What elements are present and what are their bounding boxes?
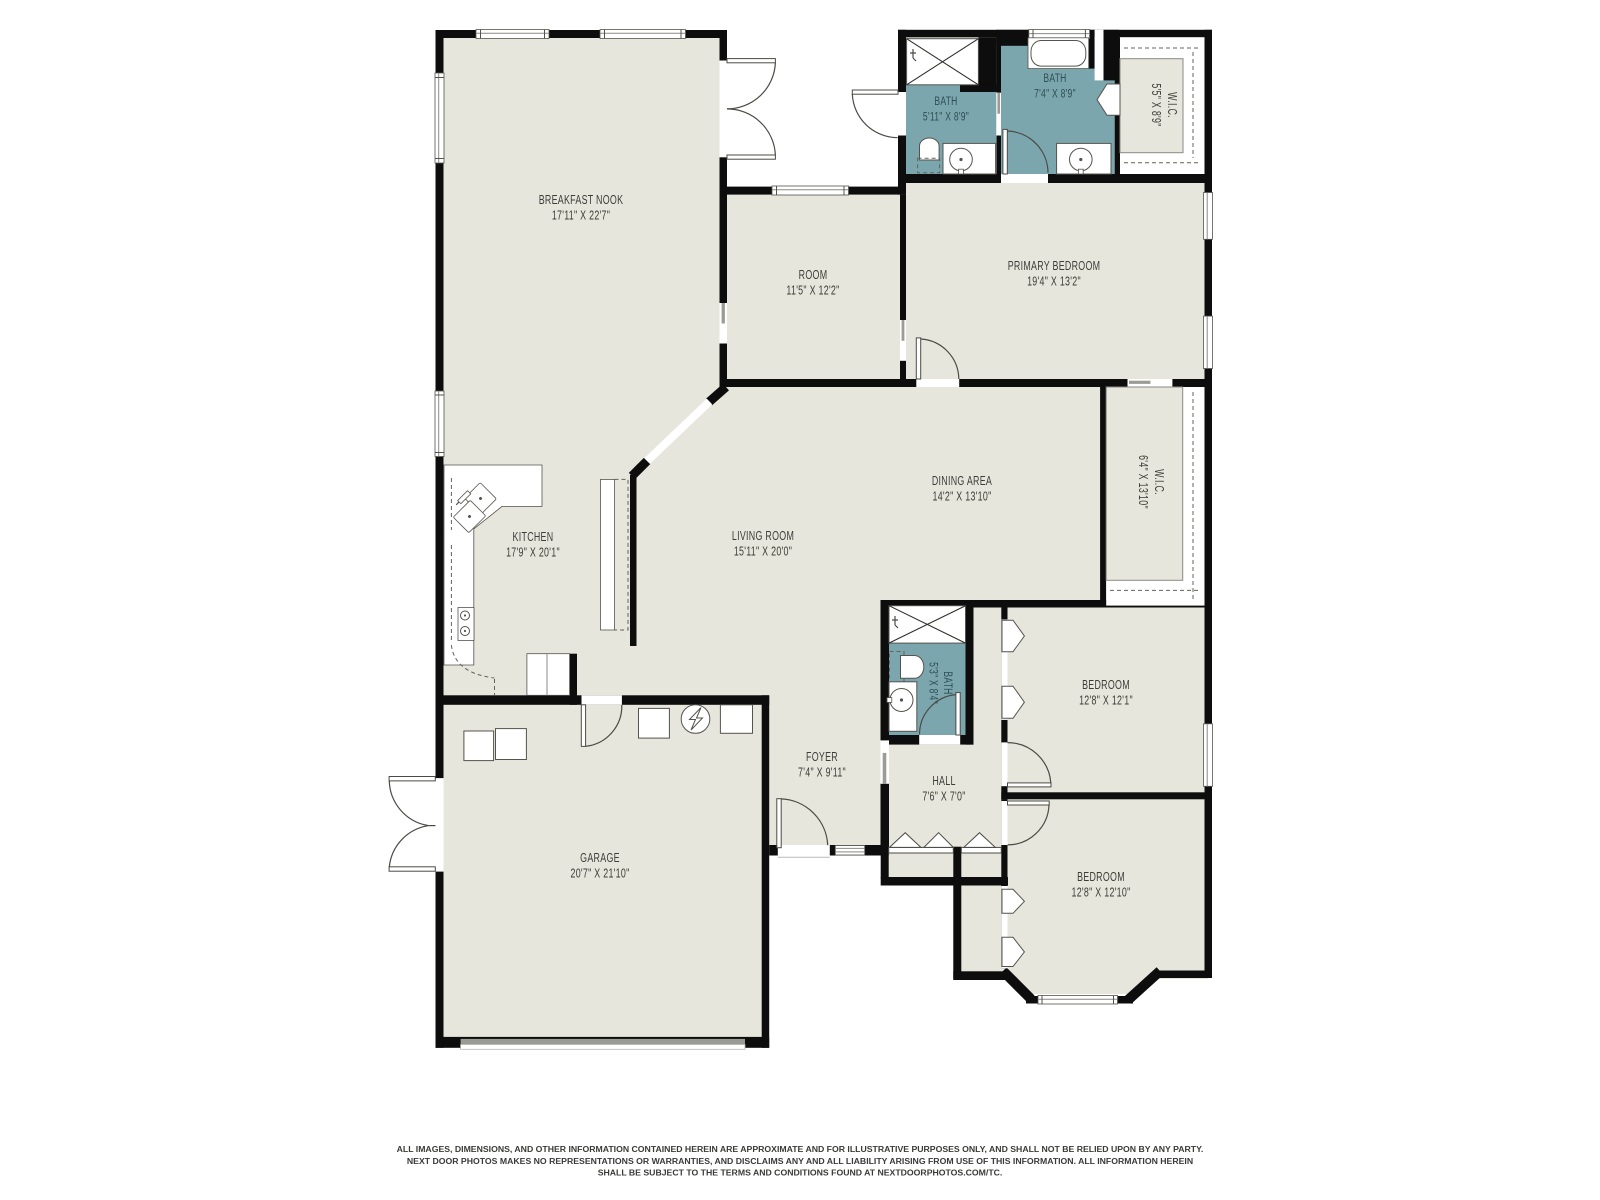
svg-text:20'7" X 21'10": 20'7" X 21'10" bbox=[570, 867, 629, 881]
svg-text:BATH: BATH bbox=[941, 671, 954, 694]
svg-text:14'2" X 13'10": 14'2" X 13'10" bbox=[932, 490, 991, 504]
svg-text:7'6" X 7'0": 7'6" X 7'0" bbox=[922, 790, 965, 804]
svg-text:W.I.C.: W.I.C. bbox=[1152, 469, 1166, 495]
svg-text:GARAGE: GARAGE bbox=[580, 852, 620, 866]
svg-text:19'4" X 13'2": 19'4" X 13'2" bbox=[1027, 275, 1081, 289]
svg-text:HALL: HALL bbox=[932, 775, 955, 789]
svg-text:ALL IMAGES, DIMENSIONS, AND OT: ALL IMAGES, DIMENSIONS, AND OTHER INFORM… bbox=[397, 1144, 1204, 1154]
svg-text:11'5" X 12'2": 11'5" X 12'2" bbox=[786, 284, 839, 298]
svg-text:12'8" X 12'10": 12'8" X 12'10" bbox=[1071, 886, 1130, 900]
svg-text:7'4" X 9'11": 7'4" X 9'11" bbox=[798, 766, 846, 780]
svg-text:6'4" X 13'10": 6'4" X 13'10" bbox=[1136, 455, 1150, 509]
svg-text:W.I.C.: W.I.C. bbox=[1165, 92, 1179, 118]
svg-text:DINING AREA: DINING AREA bbox=[932, 475, 993, 489]
svg-text:5'11" X 8'9": 5'11" X 8'9" bbox=[923, 111, 969, 124]
svg-text:BATH: BATH bbox=[934, 96, 957, 109]
svg-text:BREAKFAST NOOK: BREAKFAST NOOK bbox=[539, 194, 624, 208]
svg-text:BEDROOM: BEDROOM bbox=[1082, 679, 1130, 693]
svg-text:SHALL BE SUBJECT TO THE TERMS: SHALL BE SUBJECT TO THE TERMS AND CONDIT… bbox=[598, 1168, 1003, 1178]
svg-text:5'3" X 8'4": 5'3" X 8'4" bbox=[926, 662, 939, 704]
svg-text:BATH: BATH bbox=[1043, 73, 1066, 86]
svg-text:15'11" X 20'0": 15'11" X 20'0" bbox=[734, 545, 792, 559]
svg-text:NEXT DOOR PHOTOS MAKES NO REPR: NEXT DOOR PHOTOS MAKES NO REPRESENTATION… bbox=[407, 1156, 1193, 1166]
svg-text:PRIMARY BEDROOM: PRIMARY BEDROOM bbox=[1008, 260, 1101, 274]
svg-text:17'9" X 20'1": 17'9" X 20'1" bbox=[506, 546, 560, 560]
svg-text:KITCHEN: KITCHEN bbox=[513, 531, 554, 545]
svg-text:FOYER: FOYER bbox=[806, 751, 838, 765]
svg-text:17'11" X 22'7": 17'11" X 22'7" bbox=[552, 209, 610, 223]
svg-text:12'8" X 12'1": 12'8" X 12'1" bbox=[1079, 694, 1133, 708]
svg-text:7'4" X 8'9": 7'4" X 8'9" bbox=[1034, 88, 1076, 101]
svg-text:ROOM: ROOM bbox=[799, 269, 828, 283]
svg-text:BEDROOM: BEDROOM bbox=[1077, 871, 1125, 885]
svg-text:LIVING ROOM: LIVING ROOM bbox=[732, 530, 794, 544]
svg-text:5'5" X 8'9": 5'5" X 8'9" bbox=[1149, 83, 1163, 126]
